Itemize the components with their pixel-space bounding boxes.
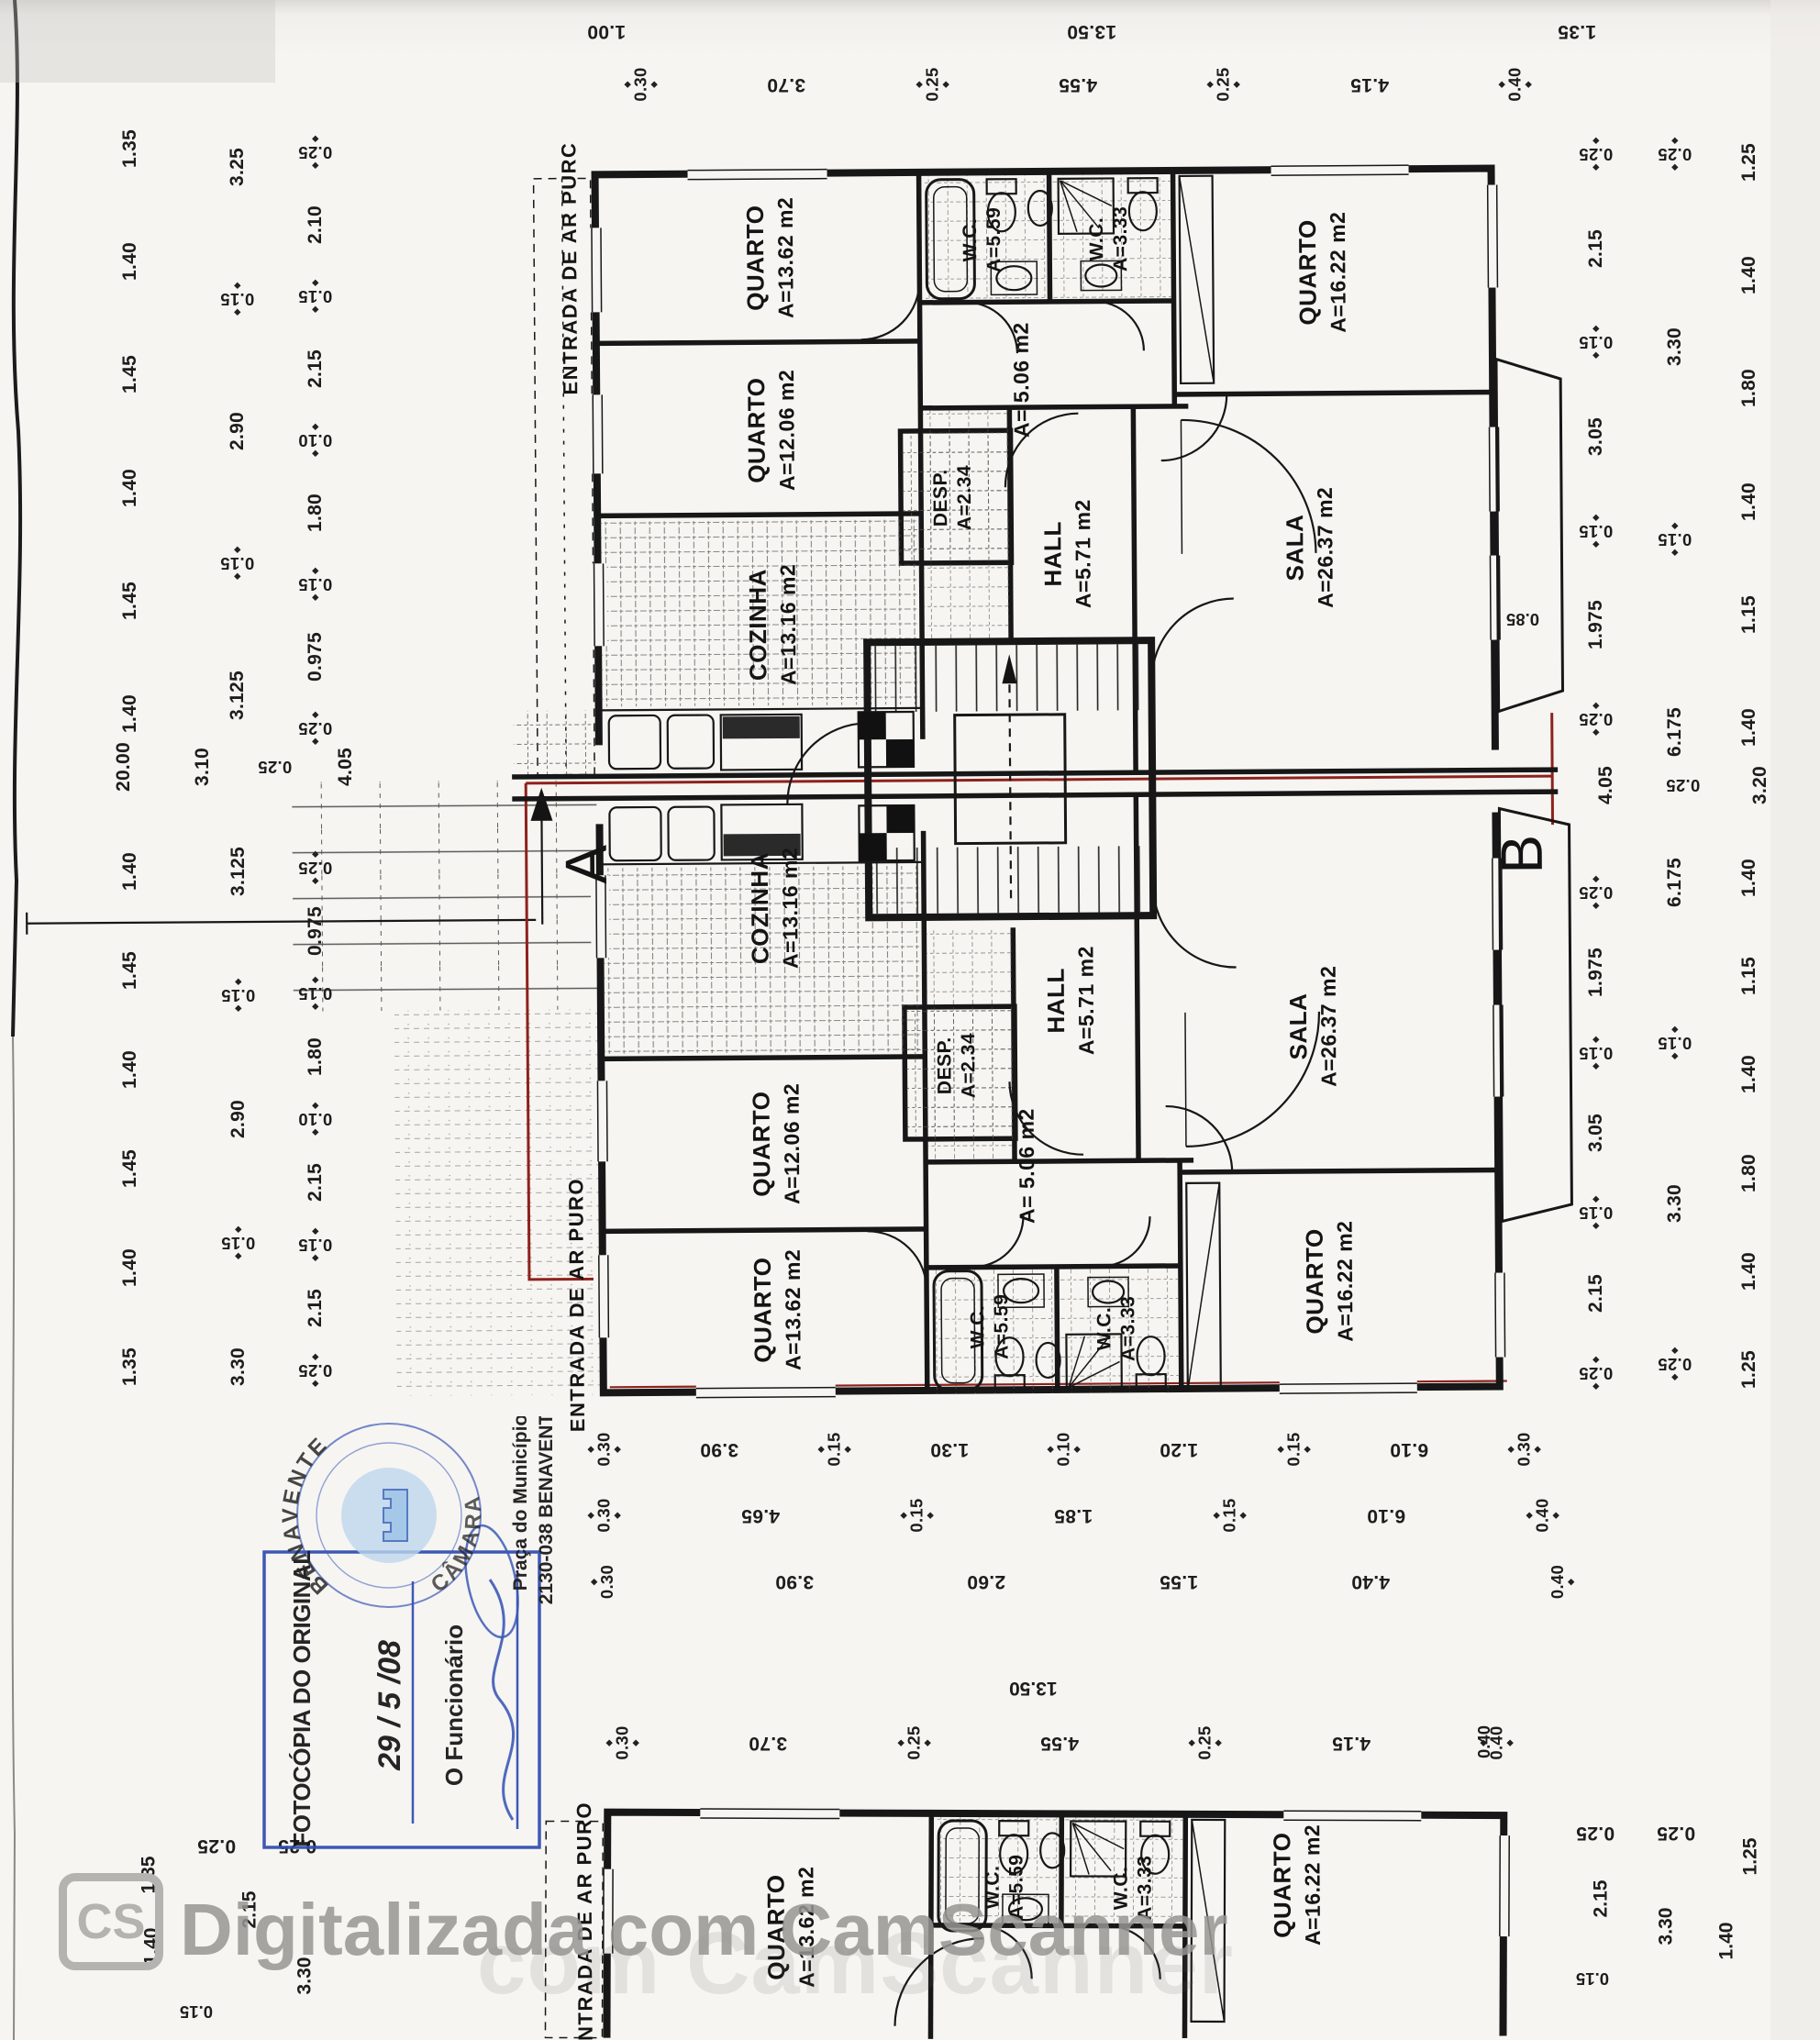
scanned-sheet: QUARTOA=13.62 m2 QUARTOA=12.06 m2 W.C.A=… xyxy=(0,0,1820,2040)
page-edge-curl xyxy=(13,0,20,1037)
scan-artifacts xyxy=(0,0,1820,2040)
